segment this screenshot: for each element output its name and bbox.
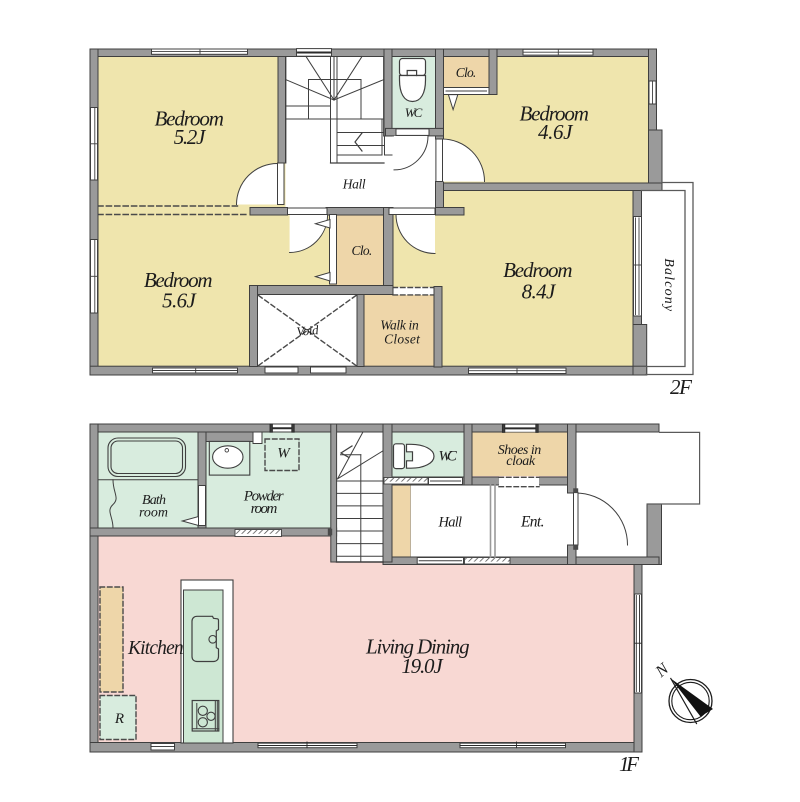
svg-text:1F: 1F bbox=[619, 752, 639, 776]
svg-text:Hall: Hall bbox=[438, 515, 463, 531]
svg-text:Closet: Closet bbox=[384, 332, 421, 347]
svg-text:Clo.: Clo. bbox=[352, 243, 373, 258]
svg-text:WC: WC bbox=[405, 105, 423, 120]
svg-text:R: R bbox=[114, 711, 124, 727]
svg-text:19.0J: 19.0J bbox=[401, 654, 444, 678]
svg-text:WC: WC bbox=[438, 449, 457, 465]
svg-text:room: room bbox=[251, 501, 278, 517]
svg-text:5.6J: 5.6J bbox=[162, 289, 197, 313]
svg-text:Kitchen: Kitchen bbox=[127, 638, 184, 659]
svg-text:4.6J: 4.6J bbox=[538, 120, 574, 144]
svg-text:8.4J: 8.4J bbox=[522, 279, 557, 303]
svg-text:5.2J: 5.2J bbox=[174, 125, 207, 149]
svg-text:Walk in: Walk in bbox=[380, 318, 419, 333]
svg-text:cloak: cloak bbox=[506, 454, 536, 469]
svg-text:Hall: Hall bbox=[342, 177, 366, 192]
svg-text:Ent.: Ent. bbox=[520, 514, 545, 531]
svg-text:room: room bbox=[139, 506, 168, 521]
svg-text:Clo.: Clo. bbox=[456, 65, 477, 80]
svg-text:W: W bbox=[277, 446, 291, 462]
svg-text:2F: 2F bbox=[670, 375, 692, 399]
svg-text:Void: Void bbox=[296, 322, 320, 339]
